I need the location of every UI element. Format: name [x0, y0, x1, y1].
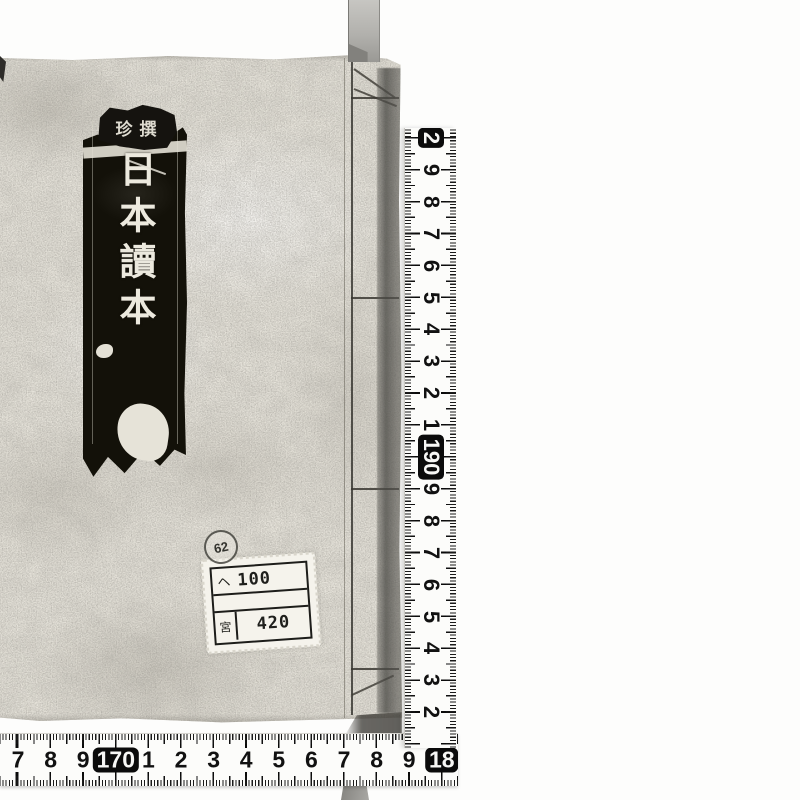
call-number-kanji: 宮	[215, 612, 239, 641]
ruler-label: 3	[420, 355, 442, 367]
ruler-label: 8	[420, 515, 442, 527]
ruler-label: 7	[420, 228, 442, 240]
ruler-label: 6	[420, 578, 442, 590]
ruler-label: 7	[420, 547, 442, 559]
ruler-label: 3	[420, 674, 442, 686]
binding-thread-vertical	[351, 60, 353, 715]
ruler-label: 9	[420, 164, 442, 176]
ruler-label: 170	[93, 748, 139, 773]
ruler-label: 18	[425, 748, 458, 773]
ruler-label: 2	[418, 128, 444, 148]
ruler-label: 7	[338, 749, 351, 772]
ruler-label: 7	[12, 749, 25, 772]
ruler-label: 8	[370, 749, 383, 772]
call-number-value: 100	[237, 568, 272, 590]
ruler-label: 6	[305, 749, 318, 772]
book-cover: 珍撰 日本讀本 ヘ 100 宮 420	[0, 54, 403, 723]
ruler-label: 190	[418, 435, 444, 480]
ruler-label: 8	[44, 749, 57, 772]
horizontal-ruler: 78917012345678918	[0, 733, 458, 786]
vertical-ruler: 298765432119098765432	[404, 128, 456, 748]
title-slip-header-text: 珍撰	[109, 115, 164, 140]
paper-texture	[0, 54, 403, 723]
ruler-label: 6	[420, 259, 442, 271]
page-block-edge-shadow	[377, 68, 402, 713]
ruler-label: 3	[207, 749, 220, 772]
ruler-label: 4	[420, 323, 442, 335]
ruler-label: 9	[420, 483, 442, 495]
call-number-grid: ヘ 100 宮 420	[209, 561, 312, 646]
cover-fold-crease	[344, 58, 345, 718]
ruler-label: 2	[420, 706, 442, 718]
ruler-label: 1	[142, 749, 155, 772]
ruler-label: 5	[420, 610, 442, 622]
book-stand-strap	[348, 0, 380, 62]
ruler-label: 1	[420, 419, 442, 431]
scanned-photo: 珍撰 日本讀本 ヘ 100 宮 420	[0, 0, 800, 800]
ruler-label: 4	[420, 642, 442, 654]
ruler-label: 8	[420, 196, 442, 208]
title-slip: 珍撰 日本讀本	[83, 104, 187, 484]
title-slip-title-text: 日本讀本	[108, 150, 162, 334]
call-number-kana: ヘ	[217, 571, 231, 591]
ruler-label: 2	[420, 387, 442, 399]
ruler-label: 9	[403, 749, 416, 772]
call-number-label: ヘ 100 宮 420	[201, 552, 321, 654]
ruler-label: 2	[175, 749, 188, 772]
call-number-value: 420	[256, 612, 291, 634]
ruler-label: 4	[240, 749, 253, 772]
horizontal-ruler-labels: 78917012345678918	[0, 734, 458, 786]
call-number-row-bottom: 宮 420	[215, 607, 311, 641]
ruler-label: 5	[272, 749, 285, 772]
ruler-label: 9	[77, 749, 90, 772]
ruler-label: 5	[420, 291, 442, 303]
vertical-ruler-labels: 298765432119098765432	[405, 128, 456, 748]
